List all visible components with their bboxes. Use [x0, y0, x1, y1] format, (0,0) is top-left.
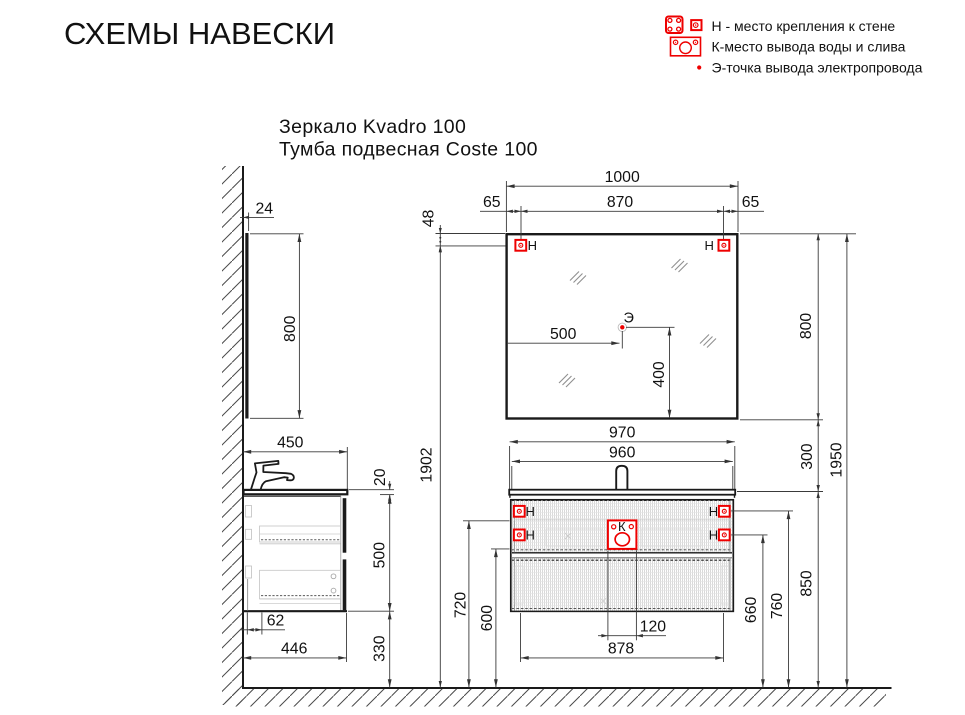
svg-text:500: 500	[371, 542, 388, 569]
svg-text:Тумба подвесная Coste 100: Тумба подвесная Coste 100	[279, 139, 538, 161]
svg-text:660: 660	[743, 597, 760, 624]
svg-text:Н: Н	[528, 238, 537, 253]
svg-text:720: 720	[452, 592, 469, 619]
svg-text:800: 800	[798, 313, 815, 340]
svg-text:850: 850	[799, 570, 816, 597]
svg-text:800: 800	[282, 315, 299, 342]
svg-text:600: 600	[479, 605, 496, 632]
svg-text:Н: Н	[526, 528, 535, 543]
svg-text:65: 65	[483, 194, 501, 211]
svg-text:500: 500	[550, 326, 577, 343]
svg-text:62: 62	[267, 613, 285, 630]
svg-text:960: 960	[609, 444, 636, 461]
svg-text:450: 450	[277, 435, 304, 452]
svg-text:400: 400	[651, 361, 668, 388]
svg-text:870: 870	[607, 194, 634, 211]
svg-text:970: 970	[609, 425, 636, 442]
svg-text:65: 65	[742, 194, 760, 211]
svg-text:760: 760	[769, 593, 786, 620]
svg-text:48: 48	[421, 210, 438, 228]
svg-text:Зеркало Kvadro 100: Зеркало Kvadro 100	[279, 116, 466, 138]
svg-text:Н: Н	[526, 504, 535, 519]
svg-text:446: 446	[281, 641, 308, 658]
svg-text:330: 330	[371, 635, 388, 662]
svg-text:Н: Н	[705, 238, 714, 253]
svg-text:878: 878	[608, 641, 635, 658]
svg-text:Э-точка вывода электропровода: Э-точка вывода электропровода	[712, 59, 923, 75]
svg-text:120: 120	[640, 619, 667, 636]
svg-text:20: 20	[372, 468, 389, 486]
svg-text:К-место вывода воды и слива: К-место вывода воды и слива	[712, 38, 906, 54]
svg-text:Э: Э	[624, 311, 634, 327]
svg-text:СХЕМЫ НАВЕСКИ: СХЕМЫ НАВЕСКИ	[64, 16, 335, 51]
svg-text:1950: 1950	[829, 442, 846, 477]
svg-text:Н - место крепления к стене: Н - место крепления к стене	[712, 18, 896, 34]
svg-text:24: 24	[256, 200, 274, 217]
svg-text:Н: Н	[709, 504, 718, 519]
svg-text:К: К	[618, 519, 626, 534]
svg-text:Н: Н	[709, 528, 718, 543]
svg-text:1000: 1000	[605, 169, 640, 186]
svg-text:300: 300	[799, 443, 816, 470]
svg-text:1902: 1902	[419, 447, 436, 482]
